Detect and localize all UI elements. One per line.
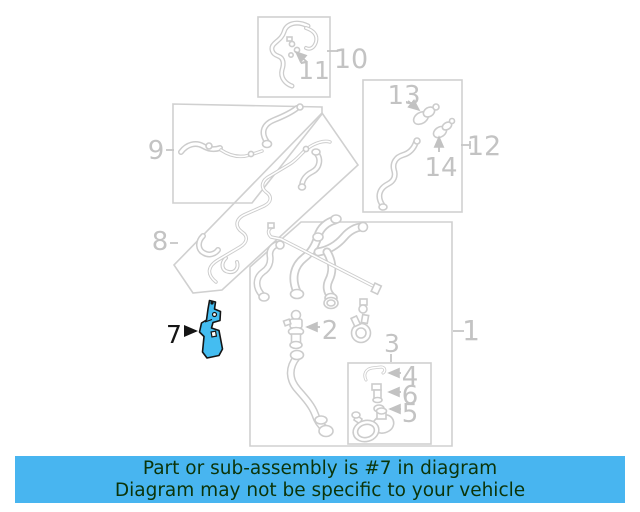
fitting-6 [372, 384, 382, 403]
callout-2: 2 [322, 316, 339, 346]
callout-9: 9 [148, 136, 165, 166]
callout-12: 12 [467, 131, 501, 162]
callout-1: 1 [462, 314, 480, 347]
fitting-2 [283, 311, 303, 349]
callout-13: 13 [387, 81, 420, 111]
part-7-shape [200, 301, 223, 359]
thermostat-housing [351, 408, 394, 445]
box-11-group: 11 10 [258, 17, 368, 97]
callout-11: 11 [298, 56, 330, 85]
callout-3: 3 [384, 329, 400, 358]
callout-14: 14 [424, 153, 457, 183]
info-banner: Part or sub-assembly is #7 in diagram Di… [15, 456, 625, 503]
fitting-14 [431, 119, 454, 140]
callout-8: 8 [152, 227, 169, 257]
parts-diagram-image: 11 10 9 8 [0, 0, 640, 512]
diagram-canvas: 11 10 9 8 [0, 0, 640, 512]
fitting-right-of-2 [351, 315, 370, 343]
box-1-group: 2 3 [250, 215, 464, 446]
banner-line1: Part or sub-assembly is #7 in diagram [15, 458, 625, 480]
callout-10: 10 [334, 44, 368, 75]
box-9-group: 9 [148, 104, 322, 203]
box-13-group: 13 14 12 [363, 80, 501, 212]
banner-line2: Diagram may not be specific to your vehi… [15, 480, 625, 502]
highlighted-part-7: 7 [166, 301, 222, 359]
nested-box-group: 4 6 5 [348, 362, 431, 445]
callout-7: 7 [166, 320, 182, 349]
callout-5: 5 [402, 399, 419, 429]
